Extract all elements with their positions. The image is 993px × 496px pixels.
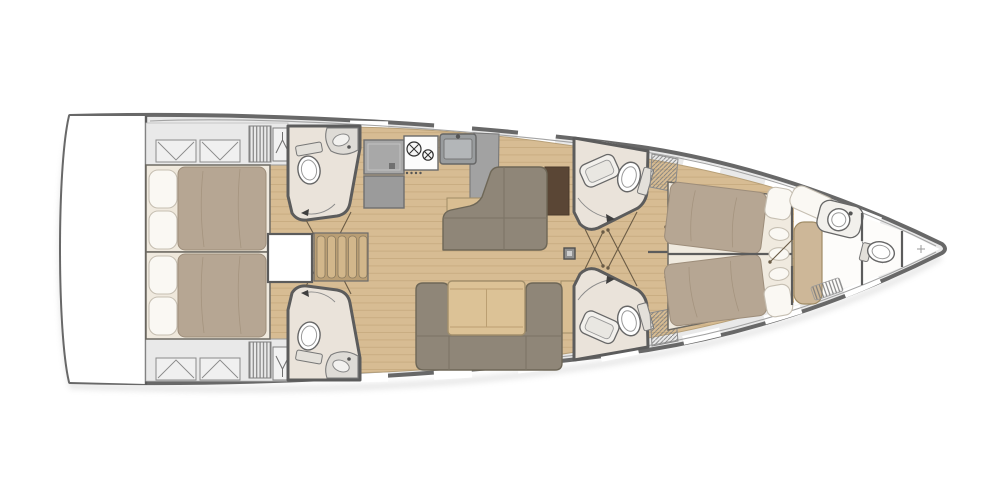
faucet-icon: [347, 145, 351, 149]
aft-cabin-port: [146, 165, 270, 252]
stove-knob: [415, 172, 417, 174]
double-berth-mattress: [178, 167, 266, 250]
faucet-icon: [347, 357, 351, 361]
aft-storage-port: [146, 123, 292, 165]
berth-port: [664, 181, 768, 254]
galley-cabinet: [364, 176, 404, 208]
fridge: [364, 140, 404, 174]
berth-starboard: [664, 253, 768, 326]
deck-hatch-icon: [200, 140, 240, 162]
swim-platform: [61, 116, 146, 384]
engine-hatch: [268, 234, 312, 282]
aft-cabin-starboard: [146, 252, 270, 339]
stove-knob: [419, 172, 421, 174]
galley-sink-basin: [444, 139, 472, 159]
faucet-icon: [456, 134, 460, 138]
berth-mattress: [664, 181, 768, 254]
companionway: [268, 233, 368, 282]
forward-cabin: [664, 181, 795, 330]
yacht-floorplan-drawing: [0, 0, 993, 496]
stair-tread: [349, 236, 357, 278]
stair-tread: [328, 236, 336, 278]
yacht-floorplan-page: [0, 0, 993, 496]
stair-tread: [317, 236, 325, 278]
bolster-cushion: [769, 248, 789, 261]
fridge-handle: [389, 163, 395, 169]
stove-knob: [406, 172, 408, 174]
chart-table-mat: [545, 167, 569, 215]
stair-tread: [338, 236, 346, 278]
deck-hatch-icon: [200, 358, 240, 380]
pillow: [149, 256, 177, 294]
berth-mattress: [664, 253, 768, 326]
louvre-vent-icon: [249, 342, 271, 378]
aft-storage-starboard: [146, 339, 292, 381]
stair-tread: [359, 236, 367, 278]
salon-starboard: [416, 281, 576, 370]
pillow: [149, 170, 177, 208]
stove-knob: [410, 172, 412, 174]
pillow: [763, 283, 794, 318]
double-berth-mattress: [178, 254, 266, 337]
deck-hatch-icon: [156, 140, 196, 162]
pillow: [149, 297, 177, 335]
louvre-vent-icon: [249, 126, 271, 162]
mast: [564, 248, 575, 259]
deck-hatch-icon: [156, 358, 196, 380]
pillow: [149, 211, 177, 249]
mast-core: [567, 251, 572, 256]
